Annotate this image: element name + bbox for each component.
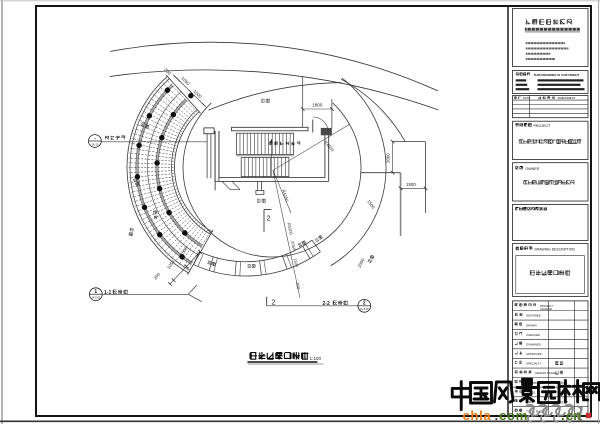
- svg-text:JA-5.02: JA-5.02: [91, 296, 100, 300]
- svg-text:2: 2: [267, 216, 271, 223]
- svg-text:THIS DRAWING IS COPYRIGHT: THIS DRAWING IS COPYRIGHT: [534, 73, 580, 77]
- svg-text:2: 2: [272, 300, 276, 307]
- svg-text:SPECIALTY: SPECIALTY: [526, 362, 541, 366]
- svg-text:cn: cn: [566, 408, 581, 423]
- svg-text:com: com: [499, 408, 528, 423]
- svg-text:DRAWING DESCRIPTION: DRAWING DESCRIPTION: [535, 247, 576, 251]
- svg-text:OWNER: OWNER: [526, 167, 540, 171]
- svg-text:1: 1: [94, 289, 97, 295]
- svg-text:JA-10: JA-10: [92, 142, 99, 146]
- svg-text:AMENDMENT: AMENDMENT: [558, 96, 576, 100]
- svg-text:CHARGE: CHARGE: [540, 307, 552, 311]
- svg-text:DESIGN STAGE: DESIGN STAGE: [535, 371, 556, 375]
- svg-text:2000: 2000: [385, 153, 390, 163]
- svg-text:CHECKED: CHECKED: [526, 333, 540, 337]
- svg-text:chla: chla: [463, 408, 492, 423]
- svg-text:APPROVED: APPROVED: [526, 352, 542, 356]
- svg-text:DATE: DATE: [523, 96, 530, 100]
- svg-text:1-1: 1-1: [104, 290, 111, 296]
- svg-text:.: .: [561, 408, 565, 423]
- svg-text:1500: 1500: [406, 182, 416, 187]
- svg-text:.: .: [495, 408, 499, 423]
- svg-text:2: 2: [363, 301, 366, 307]
- svg-text:2-2: 2-2: [323, 301, 330, 307]
- svg-text:1:100: 1:100: [310, 356, 322, 361]
- svg-text:JA-5.07: JA-5.07: [360, 307, 369, 311]
- svg-text:DESIGNED: DESIGNED: [526, 314, 541, 318]
- svg-text:DRAWN: DRAWN: [526, 323, 536, 327]
- svg-text:1800: 1800: [312, 103, 323, 108]
- svg-text:PROJECT: PROJECT: [534, 124, 552, 128]
- svg-text:EXAMINED: EXAMINED: [526, 342, 541, 346]
